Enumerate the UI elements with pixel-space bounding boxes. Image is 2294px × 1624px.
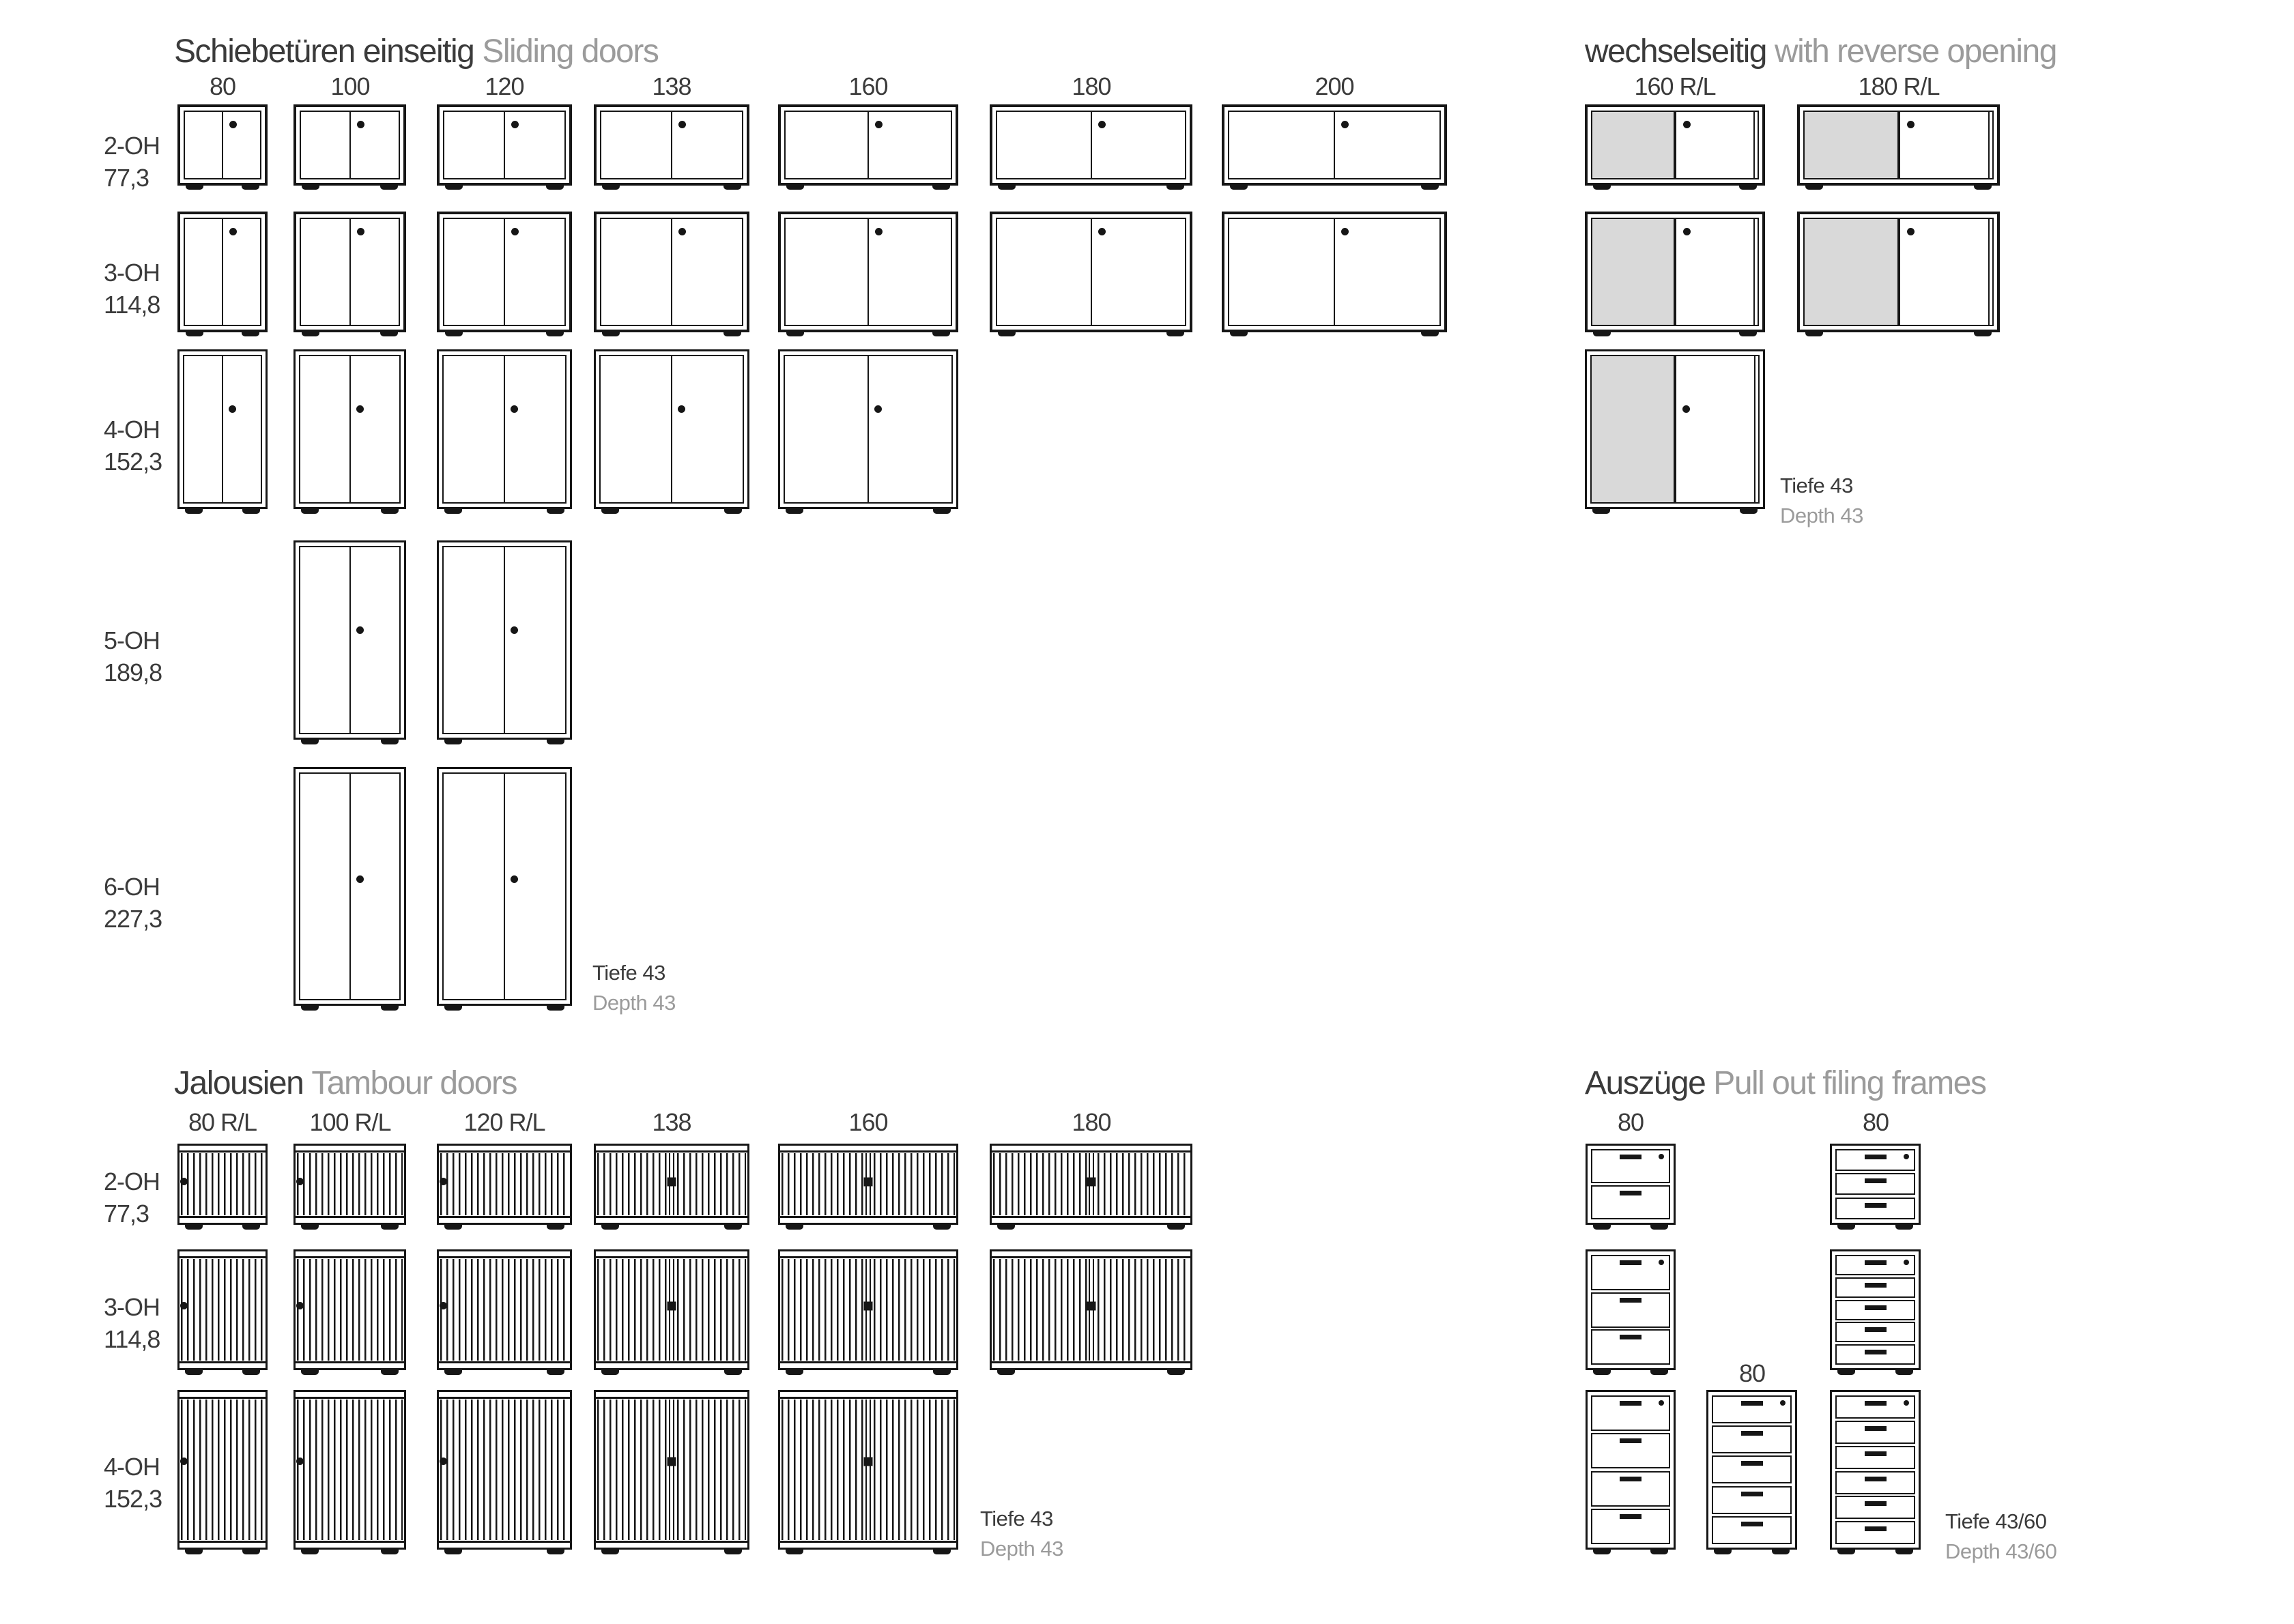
door-split-line	[1674, 218, 1676, 326]
top-rail	[780, 1397, 956, 1399]
cabinet-tambour-3-OH-100 R/L	[293, 1249, 406, 1370]
row-label-3-OH-size: 114,8	[104, 289, 160, 321]
drawer-handle	[1741, 1431, 1763, 1436]
cabinet-foot	[933, 1368, 951, 1375]
cabinet-foot	[301, 738, 319, 744]
row-label-2-OH-oh: 2-OH	[104, 130, 160, 162]
drawer	[1712, 1425, 1792, 1453]
cabinet-foot	[1167, 1368, 1185, 1375]
cabinet-foot	[1805, 183, 1823, 190]
col-label-sliding-100: 100	[330, 72, 369, 101]
door-split-line	[1334, 111, 1335, 179]
cabinet-foot	[242, 183, 259, 190]
cabinet-foot	[1230, 183, 1248, 190]
tambour-slats	[297, 1259, 403, 1361]
handle-dot	[1341, 121, 1349, 128]
col-label-sliding-180: 180	[1072, 72, 1110, 101]
top-rail	[992, 1150, 1190, 1152]
top-rail	[296, 1256, 404, 1258]
depth-note-tambour-de: Tiefe 43	[980, 1504, 1063, 1534]
cabinet-foot	[381, 507, 399, 514]
handle-square	[1087, 1178, 1095, 1187]
cabinet-foot	[185, 1223, 203, 1230]
bottom-rail	[439, 1361, 570, 1363]
door-split-line	[1674, 111, 1676, 179]
handle-dot	[1682, 405, 1690, 413]
top-rail	[180, 1150, 266, 1152]
door-split-line	[1897, 111, 1899, 179]
cabinet-foot	[601, 1548, 619, 1554]
row-label-tambour-2-OH: 2-OH77,3	[104, 1166, 160, 1230]
drawer-handle	[1741, 1522, 1763, 1526]
cabinet-foot	[185, 507, 203, 514]
section-title-filing-frames-en: Pull out filing frames	[1713, 1065, 1985, 1101]
top-rail	[439, 1397, 570, 1399]
row-label-5-OH-size: 189,8	[104, 657, 162, 689]
cabinet-tambour-4-OH-120 R/L	[437, 1390, 572, 1550]
cabinet-sliding-4-OH-100	[293, 349, 406, 509]
cabinet-foot	[601, 507, 619, 514]
drawer	[1591, 1395, 1670, 1431]
drawer-handle	[1620, 1514, 1641, 1519]
cabinet-foot	[546, 330, 564, 336]
top-rail	[596, 1256, 747, 1258]
cabinet-foot	[786, 1368, 803, 1375]
row-label-tambour-4-OH-oh: 4-OH	[104, 1451, 162, 1483]
cabinet-filing-4-OH-5drawers	[1706, 1390, 1797, 1550]
row-label-4-OH: 4-OH152,3	[104, 414, 162, 478]
drawer	[1835, 1277, 1915, 1298]
cabinet-foot	[444, 507, 462, 514]
bottom-rail	[780, 1541, 956, 1543]
cabinet-tambour-2-OH-80 R/L	[177, 1144, 268, 1225]
depth-note-sliding: Tiefe 43 Depth 43	[592, 958, 676, 1018]
cabinet-reverse-4-OH-160 R/L	[1585, 349, 1765, 509]
row-label-tambour-4-OH: 4-OH152,3	[104, 1451, 162, 1516]
cabinet-foot	[186, 330, 203, 336]
cabinet-sliding-3-OH-100	[293, 212, 406, 332]
cabinet-foot	[786, 507, 803, 514]
cabinet-reverse-2-OH-180 R/L	[1797, 104, 2000, 186]
col-label-tambour-120 R/L: 120 R/L	[463, 1108, 545, 1137]
col-label-sliding-160: 160	[848, 72, 887, 101]
cabinet-foot	[301, 1004, 319, 1011]
cabinet-reverse-2-OH-160 R/L	[1585, 104, 1765, 186]
cabinet-foot	[1895, 1223, 1913, 1230]
cabinet-foot	[381, 738, 399, 744]
cabinet-foot	[1166, 183, 1184, 190]
door-split-line	[504, 218, 505, 326]
cabinet-foot	[381, 1368, 399, 1375]
drawer	[1591, 1292, 1670, 1328]
section-title-tambour-doors: JalousienTambour doors	[174, 1064, 517, 1102]
cabinet-tambour-2-OH-100 R/L	[293, 1144, 406, 1225]
handle-dot	[1683, 121, 1691, 128]
cabinet-tambour-4-OH-80 R/L	[177, 1390, 268, 1550]
cabinet-sliding-5-OH-100	[293, 540, 406, 740]
cabinet-sliding-2-OH-180	[990, 104, 1192, 186]
cabinet-foot	[242, 1223, 260, 1230]
handle-square	[864, 1178, 873, 1187]
cabinet-foot	[301, 1223, 319, 1230]
cabinet-foot	[380, 183, 398, 190]
door-left-gray	[1591, 111, 1675, 179]
col-label-sliding-80: 80	[210, 72, 235, 101]
cabinet-foot	[723, 330, 741, 336]
handle-dot	[180, 1178, 188, 1185]
door-split-line	[349, 355, 351, 504]
row-label-tambour-2-OH-oh: 2-OH	[104, 1166, 160, 1198]
cabinet-sliding-2-OH-80	[177, 104, 268, 186]
drawer-handle	[1865, 1350, 1887, 1354]
cabinet-foot	[242, 507, 260, 514]
cabinet-foot	[786, 183, 804, 190]
cabinet-tambour-2-OH-160	[778, 1144, 958, 1225]
cabinet-foot	[1739, 330, 1757, 336]
cabinet-sliding-3-OH-80	[177, 212, 268, 332]
handle-dot	[296, 1178, 304, 1185]
bottom-rail	[180, 1216, 266, 1218]
drawer	[1591, 1185, 1670, 1219]
cabinet-foot	[601, 1223, 619, 1230]
cabinet-foot	[381, 1004, 399, 1011]
section-title-filing-frames: AuszügePull out filing frames	[1585, 1064, 1985, 1102]
cabinet-foot	[1593, 183, 1611, 190]
door-left-gray	[1803, 218, 1899, 326]
handle-dot	[229, 405, 236, 413]
bottom-rail	[596, 1216, 747, 1218]
col-label-sliding-120: 120	[485, 72, 524, 101]
handle-square	[668, 1458, 676, 1466]
cabinet-sliding-6-OH-120	[437, 767, 572, 1006]
handle-dot	[511, 228, 519, 235]
cabinet-foot	[444, 738, 462, 744]
cabinet-tambour-3-OH-80 R/L	[177, 1249, 268, 1370]
catalog-page: { "colors": { "ink": "#161616", "text_da…	[0, 0, 2294, 1624]
lock-dot	[1780, 1400, 1786, 1406]
cabinet-foot	[381, 1223, 399, 1230]
drawer	[1712, 1516, 1792, 1544]
handle-dot	[440, 1458, 447, 1465]
col-label-sliding-138: 138	[652, 72, 691, 101]
section-title-sliding-doors-en: Sliding doors	[482, 33, 658, 70]
row-label-4-OH-oh: 4-OH	[104, 414, 162, 446]
col-label-reverse-180 R/L: 180 R/L	[1858, 72, 1939, 101]
door-split-line	[504, 546, 505, 734]
depth-note-filing-en: Depth 43/60	[1945, 1537, 2056, 1567]
cabinet-foot	[301, 507, 319, 514]
cabinet-foot	[547, 1223, 564, 1230]
cabinet-tambour-3-OH-160	[778, 1249, 958, 1370]
handle-dot	[1098, 228, 1106, 235]
door-split-line	[1091, 218, 1092, 326]
drawer	[1712, 1486, 1792, 1514]
cabinet-foot	[1593, 1223, 1611, 1230]
drawer-handle	[1865, 1260, 1887, 1265]
door-left-gray	[1590, 355, 1675, 504]
cabinet-sliding-3-OH-120	[437, 212, 572, 332]
cabinet-foot	[1592, 507, 1610, 514]
section-title-reverse-opening: wechselseitigwith reverse opening	[1585, 33, 2056, 70]
handle-dot	[511, 121, 519, 128]
cabinet-foot	[602, 183, 620, 190]
row-label-tambour-3-OH: 3-OH114,8	[104, 1292, 160, 1356]
cabinet-foot	[444, 1548, 462, 1554]
top-rail	[180, 1256, 266, 1258]
drawer-handle	[1865, 1155, 1887, 1159]
bottom-rail	[780, 1216, 956, 1218]
cabinet-foot	[933, 1548, 951, 1554]
row-label-5-OH: 5-OH189,8	[104, 625, 162, 689]
row-label-4-OH-size: 152,3	[104, 446, 162, 478]
door-split-line	[349, 546, 351, 734]
top-rail	[296, 1150, 404, 1152]
cabinet-foot	[1895, 1548, 1913, 1554]
row-label-6-OH: 6-OH227,3	[104, 871, 162, 936]
cabinet-tambour-2-OH-138	[594, 1144, 749, 1225]
cabinet-tambour-4-OH-100 R/L	[293, 1390, 406, 1550]
cabinet-foot	[1772, 1548, 1790, 1554]
door-split-line	[504, 111, 505, 179]
handle-dot	[511, 405, 518, 413]
door-split-line	[865, 1400, 871, 1540]
cabinet-sliding-2-OH-200	[1222, 104, 1447, 186]
drawer	[1591, 1433, 1670, 1468]
lock-dot	[1659, 1154, 1664, 1159]
drawer	[1591, 1509, 1670, 1544]
bottom-rail	[180, 1541, 266, 1543]
drawer-handle	[1865, 1327, 1887, 1332]
col-label-tambour-100 R/L: 100 R/L	[309, 1108, 390, 1137]
cabinet-foot	[547, 1368, 564, 1375]
handle-square	[668, 1178, 676, 1187]
bottom-rail	[992, 1216, 1190, 1218]
cabinet-sliding-2-OH-160	[778, 104, 958, 186]
bottom-rail	[439, 1216, 570, 1218]
cabinet-sliding-4-OH-120	[437, 349, 572, 509]
door-split-line	[868, 218, 869, 326]
depth-note-reverse: Tiefe 43 Depth 43	[1780, 471, 1863, 531]
door-split-line	[349, 111, 351, 179]
depth-note-filing-de: Tiefe 43/60	[1945, 1507, 2056, 1537]
handle-dot	[440, 1178, 447, 1185]
cabinet-sliding-2-OH-120	[437, 104, 572, 186]
door-track-line	[1753, 111, 1755, 179]
door-split-line	[504, 355, 505, 504]
lock-dot	[1659, 1400, 1664, 1406]
cabinet-foot	[1837, 1368, 1855, 1375]
cabinet-foot	[933, 1223, 951, 1230]
door-split-line	[504, 772, 505, 1000]
drawer	[1835, 1198, 1915, 1219]
door-split-line	[868, 355, 869, 504]
section-title-sliding-doors-de: Schiebetüren einseitig	[174, 33, 474, 70]
section-title-sliding-doors: Schiebetüren einseitigSliding doors	[174, 33, 658, 70]
lock-dot	[1904, 1154, 1909, 1159]
tambour-slats	[440, 1259, 569, 1361]
door-split-line	[1674, 355, 1676, 504]
tambour-slats	[181, 1153, 264, 1215]
tambour-slats	[181, 1259, 264, 1361]
handle-square	[1087, 1302, 1095, 1311]
cabinet-sliding-3-OH-138	[594, 212, 749, 332]
door-split-line	[1897, 218, 1899, 326]
door-split-line	[222, 355, 223, 504]
row-label-tambour-3-OH-oh: 3-OH	[104, 1292, 160, 1324]
cabinet-foot	[786, 330, 804, 336]
row-label-2-OH: 2-OH77,3	[104, 130, 160, 194]
top-rail	[439, 1256, 570, 1258]
drawer	[1835, 1344, 1915, 1365]
cabinet-foot	[724, 1223, 742, 1230]
cabinet-foot	[547, 1004, 564, 1011]
drawer-handle	[1620, 1438, 1641, 1443]
drawer-handle	[1865, 1477, 1887, 1481]
lock-dot	[1659, 1260, 1664, 1265]
bottom-rail	[296, 1361, 404, 1363]
tambour-slats	[440, 1153, 569, 1215]
section-title-tambour-doors-de: Jalousien	[174, 1065, 303, 1101]
cabinet-foot	[601, 1368, 619, 1375]
row-label-6-OH-size: 227,3	[104, 903, 162, 936]
drawer	[1835, 1496, 1915, 1519]
lock-dot	[1904, 1260, 1909, 1265]
door-split-line	[349, 772, 351, 1000]
top-rail	[180, 1397, 266, 1399]
door-left-gray	[1591, 218, 1675, 326]
handle-dot	[357, 121, 364, 128]
handle-dot	[511, 875, 518, 883]
cabinet-tambour-3-OH-120 R/L	[437, 1249, 572, 1370]
cabinet-filing-2-OH-2drawers	[1586, 1144, 1676, 1225]
bottom-rail	[296, 1216, 404, 1218]
door-left-gray	[1803, 111, 1899, 179]
cabinet-tambour-3-OH-180	[990, 1249, 1192, 1370]
row-label-2-OH-size: 77,3	[104, 162, 160, 194]
drawer	[1591, 1471, 1670, 1507]
cabinet-foot	[1593, 1368, 1611, 1375]
handle-dot	[229, 228, 237, 235]
cabinet-tambour-2-OH-120 R/L	[437, 1144, 572, 1225]
door-split-line	[222, 218, 223, 326]
cabinet-sliding-6-OH-100	[293, 767, 406, 1006]
section-title-reverse-opening-de: wechselseitig	[1585, 33, 1766, 70]
bottom-rail	[296, 1541, 404, 1543]
drawer-handle	[1620, 1401, 1641, 1406]
bottom-rail	[439, 1541, 570, 1543]
door-split-line	[222, 111, 223, 179]
bottom-rail	[780, 1361, 956, 1363]
drawer	[1712, 1455, 1792, 1483]
cabinet-foot	[445, 330, 463, 336]
drawer-handle	[1865, 1526, 1887, 1531]
cabinet-filing-3-OH-5drawers	[1830, 1249, 1921, 1370]
row-label-tambour-3-OH-size: 114,8	[104, 1324, 160, 1356]
drawer	[1591, 1329, 1670, 1365]
cabinet-sliding-3-OH-200	[1222, 212, 1447, 332]
handle-dot	[180, 1458, 188, 1465]
handle-dot	[1098, 121, 1106, 128]
tambour-slats	[440, 1400, 569, 1540]
drawer	[1712, 1395, 1792, 1423]
bottom-rail	[596, 1361, 747, 1363]
drawer	[1835, 1322, 1915, 1342]
bottom-rail	[180, 1361, 266, 1363]
cabinet-tambour-4-OH-160	[778, 1390, 958, 1550]
handle-dot	[875, 121, 883, 128]
cabinet-foot	[998, 183, 1016, 190]
cabinet-foot	[1421, 330, 1439, 336]
cabinet-foot	[185, 1368, 203, 1375]
col-label-filing-0: 80	[1618, 1108, 1644, 1137]
bottom-rail	[596, 1541, 747, 1543]
col-label-sliding-200: 200	[1315, 72, 1353, 101]
door-track-line	[1754, 355, 1755, 504]
drawer-handle	[1741, 1492, 1763, 1496]
drawer-handle	[1620, 1335, 1641, 1339]
cabinet-foot	[1895, 1368, 1913, 1375]
drawer-handle	[1620, 1477, 1641, 1481]
cabinet-filing-3-OH-3drawers	[1586, 1249, 1676, 1370]
depth-note-tambour-en: Depth 43	[980, 1534, 1063, 1564]
handle-dot	[875, 228, 883, 235]
door-split-line	[868, 111, 869, 179]
cabinet-foot	[1714, 1548, 1732, 1554]
col-label-filing-1: 80	[1739, 1359, 1765, 1388]
cabinet-foot	[1837, 1223, 1855, 1230]
drawer	[1835, 1255, 1915, 1275]
cabinet-foot	[380, 330, 398, 336]
row-label-tambour-4-OH-size: 152,3	[104, 1483, 162, 1516]
drawer-handle	[1865, 1283, 1887, 1288]
door-split-line	[671, 218, 672, 326]
door-split-line	[671, 355, 672, 504]
drawer-handle	[1865, 1178, 1887, 1183]
cabinet-tambour-3-OH-138	[594, 1249, 749, 1370]
cabinet-foot	[242, 1548, 260, 1554]
drawer-handle	[1865, 1305, 1887, 1310]
cabinet-foot	[1166, 330, 1184, 336]
handle-dot	[357, 228, 364, 235]
door-split-line	[669, 1400, 674, 1540]
cabinet-foot	[301, 1548, 319, 1554]
cabinet-foot	[242, 1368, 260, 1375]
drawer	[1591, 1149, 1670, 1183]
cabinet-sliding-2-OH-138	[594, 104, 749, 186]
cabinet-sliding-2-OH-100	[293, 104, 406, 186]
door-track-line	[1753, 218, 1755, 326]
row-label-3-OH: 3-OH114,8	[104, 257, 160, 321]
col-label-reverse-160 R/L: 160 R/L	[1634, 72, 1715, 101]
cabinet-reverse-3-OH-180 R/L	[1797, 212, 2000, 332]
depth-note-reverse-de: Tiefe 43	[1780, 471, 1863, 501]
drawer	[1835, 1395, 1915, 1419]
cabinet-foot	[445, 183, 463, 190]
cabinet-foot	[602, 330, 620, 336]
cabinet-sliding-3-OH-160	[778, 212, 958, 332]
door-split-line	[1334, 218, 1335, 326]
cabinet-foot	[302, 183, 319, 190]
tambour-slats	[297, 1400, 403, 1540]
cabinet-foot	[724, 507, 742, 514]
top-rail	[780, 1150, 956, 1152]
handle-dot	[511, 626, 518, 634]
handle-dot	[1907, 228, 1915, 235]
cabinet-foot	[185, 1548, 203, 1554]
cabinet-tambour-2-OH-180	[990, 1144, 1192, 1225]
cabinet-foot	[932, 330, 950, 336]
top-rail	[780, 1256, 956, 1258]
